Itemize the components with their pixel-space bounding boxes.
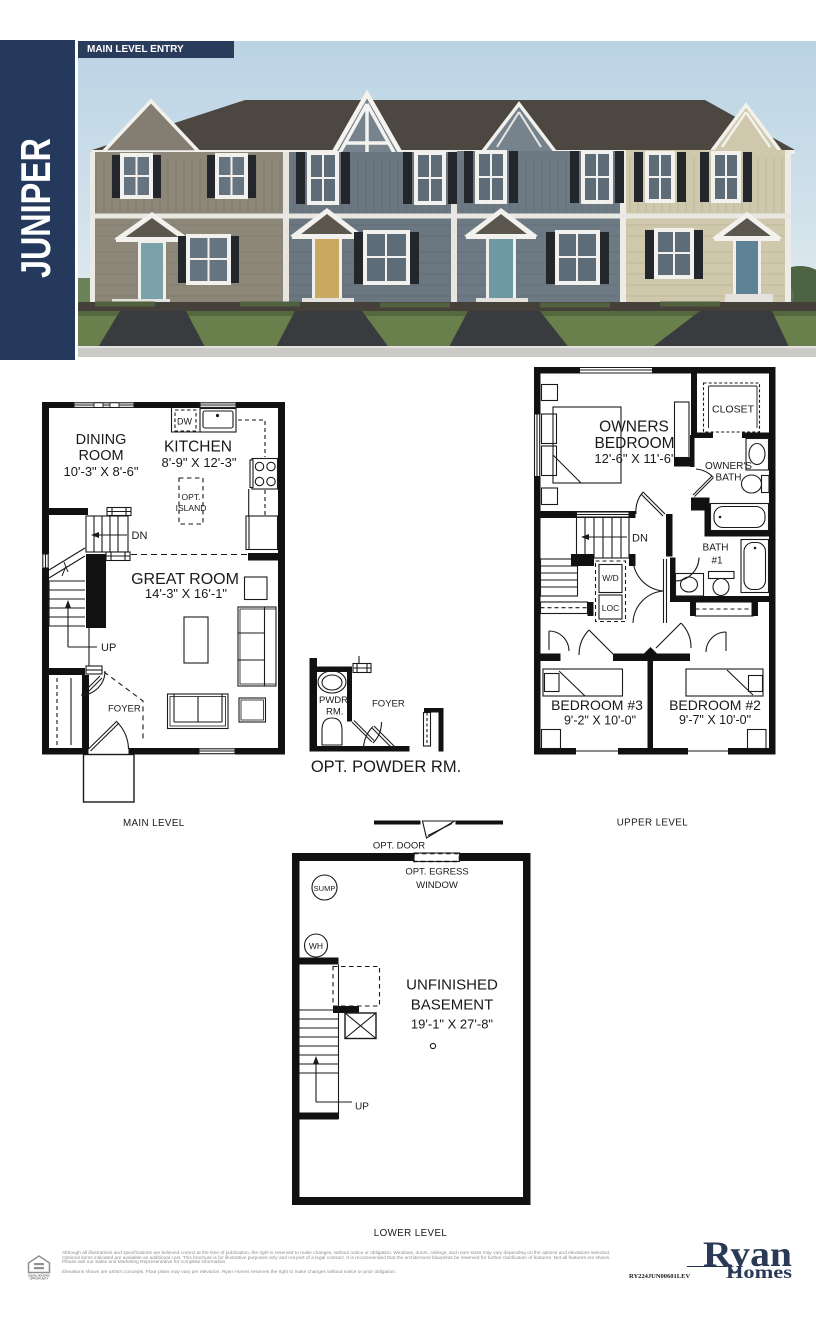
svg-text:FOYER: FOYER [372,699,405,710]
svg-text:BEDROOM #3: BEDROOM #3 [551,697,643,713]
svg-text:12'-6" X 11'-6": 12'-6" X 11'-6" [594,451,676,466]
svg-text:UNFINISHED: UNFINISHED [406,977,498,994]
svg-text:OPT.: OPT. [182,492,201,502]
svg-text:OPPORTUNITY: OPPORTUNITY [30,1277,49,1281]
svg-text:19'-1" X 27'-8": 19'-1" X 27'-8" [411,1017,494,1032]
svg-text:W/D: W/D [602,573,619,583]
svg-text:WINDOW: WINDOW [416,880,458,891]
svg-text:WH: WH [309,941,323,951]
svg-text:OPT. DOOR: OPT. DOOR [373,841,425,852]
svg-text:DN: DN [132,530,148,542]
svg-text:SUMP: SUMP [314,884,336,893]
svg-text:ROOM: ROOM [78,448,123,464]
svg-text:OWNER'S: OWNER'S [705,461,752,472]
svg-text:PWDR.: PWDR. [319,695,351,706]
svg-text:DN: DN [632,533,648,545]
svg-text:ISLAND: ISLAND [176,503,207,513]
svg-text:UPPER LEVEL: UPPER LEVEL [617,818,689,829]
svg-text:OPT. POWDER RM.: OPT. POWDER RM. [311,758,461,776]
svg-text:JUNIPER: JUNIPER [12,138,59,278]
svg-text:CLOSET: CLOSET [712,404,755,416]
svg-text:DINING: DINING [76,432,127,448]
svg-text:OWNERS: OWNERS [599,419,669,436]
svg-text:LOC: LOC [602,603,619,613]
svg-text:9'-7" X 10'-0": 9'-7" X 10'-0" [679,713,751,727]
svg-text:BEDROOM #2: BEDROOM #2 [669,697,761,713]
svg-text:RM.: RM. [326,707,343,718]
svg-text:Homes: Homes [726,1262,792,1282]
svg-text:KITCHEN: KITCHEN [164,439,232,456]
svg-text:OPT. EGRESS: OPT. EGRESS [405,867,468,878]
svg-text:BATH: BATH [716,473,742,484]
svg-text:8'-9" X 12'-3": 8'-9" X 12'-3" [162,455,237,470]
svg-text:9'-2" X 10'-0": 9'-2" X 10'-0" [564,714,636,728]
svg-text:BASEMENT: BASEMENT [411,997,494,1014]
svg-text:10'-3" X 8'-6": 10'-3" X 8'-6" [64,464,139,479]
svg-text:LOWER LEVEL: LOWER LEVEL [374,1228,448,1239]
svg-text:DW: DW [177,417,192,427]
svg-text:BEDROOM: BEDROOM [594,435,674,452]
svg-text:UP: UP [101,642,116,654]
svg-text:#1: #1 [711,556,723,567]
svg-text:UP: UP [355,1102,369,1113]
svg-text:MAIN LEVEL: MAIN LEVEL [123,818,185,829]
svg-text:BATH: BATH [703,543,729,554]
svg-text:14'-3" X 16'-1": 14'-3" X 16'-1" [145,586,228,601]
svg-text:FOYER: FOYER [108,704,141,715]
